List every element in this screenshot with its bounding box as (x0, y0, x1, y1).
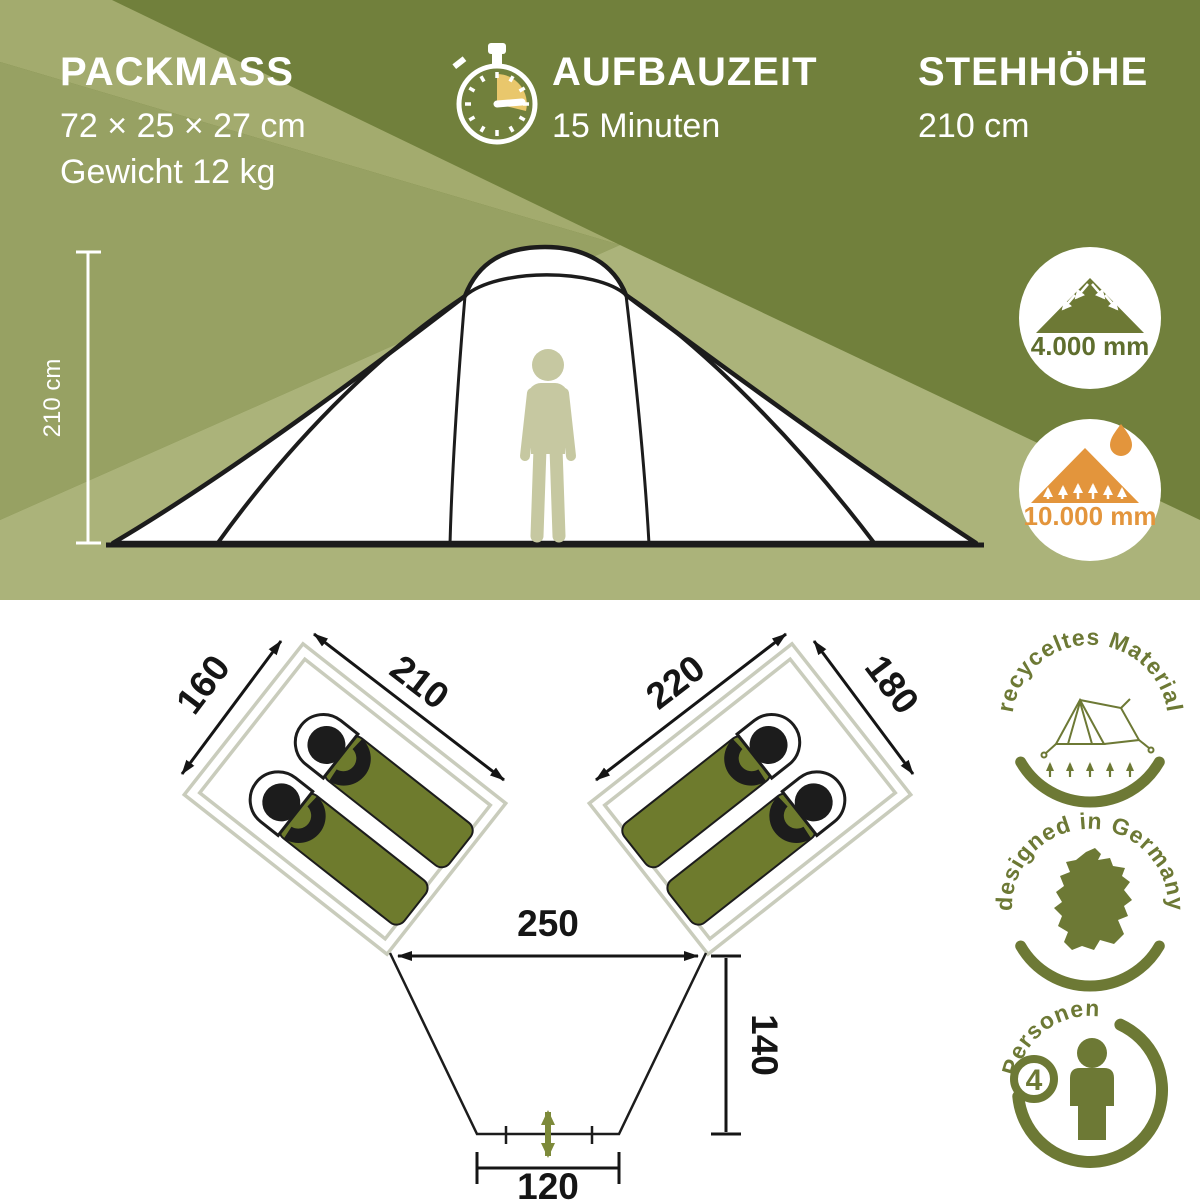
svg-text:recyceltes Material: recyceltes Material (992, 624, 1188, 714)
water-column-floor-label: 10.000 mm (1024, 501, 1157, 531)
dim-entrance-width: 120 (517, 1166, 579, 1200)
stehhoehe-value: 210 cm (918, 109, 1148, 143)
aufbauzeit-title: AUFBAUZEIT (552, 52, 818, 92)
dim-living-width: 250 (517, 903, 579, 944)
packmass-block: PACKMASS 72 × 25 × 27 cm Gewicht 12 kg (60, 52, 306, 189)
right-cabin (589, 644, 910, 954)
recycled-material-seal: recyceltes Material (992, 624, 1188, 802)
height-label: 210 cm (39, 359, 66, 438)
dim-left-side: 160 (168, 647, 238, 721)
germany-map-icon (1054, 848, 1132, 950)
dim-left-front: 210 (383, 647, 457, 717)
floorplan-illustration: 160 210 220 180 250 140 120 recyceltes M… (0, 600, 1200, 1200)
top-section: 210 cm (0, 0, 1200, 600)
tent-line-icon (1042, 699, 1154, 758)
stehhoehe-title: STEHHÖHE (918, 52, 1148, 92)
floorplan-section: 160 210 220 180 250 140 120 recyceltes M… (0, 600, 1200, 1200)
persons-count: 4 (1026, 1064, 1043, 1097)
germany-seal: designed in Germany (991, 808, 1189, 986)
recycled-arrows (1050, 764, 1130, 777)
dim-right-front: 220 (638, 647, 712, 717)
packmass-size: 72 × 25 × 27 cm (60, 109, 306, 143)
aufbauzeit-value: 15 Minuten (552, 109, 818, 143)
stehhoehe-block: STEHHÖHE 210 cm (918, 52, 1148, 143)
left-cabin (184, 644, 505, 954)
dim-living-depth: 140 (744, 1014, 785, 1076)
aufbauzeit-block: AUFBAUZEIT 15 Minuten (552, 52, 818, 143)
packmass-weight: Gewicht 12 kg (60, 155, 306, 189)
dim-right-side: 180 (857, 647, 927, 721)
water-column-floor-badge: 10.000 mm (1019, 419, 1161, 561)
recycled-label: recyceltes Material (992, 624, 1188, 714)
product-infographic: 210 cm (0, 0, 1200, 1200)
water-column-outer-badge: 4.000 mm (1019, 247, 1161, 389)
water-column-outer-label: 4.000 mm (1031, 331, 1150, 361)
persons-seal: Personen 4 (997, 995, 1162, 1162)
packmass-title: PACKMASS (60, 52, 306, 92)
stopwatch-icon (452, 43, 535, 142)
person-silhouette-icon (1070, 1038, 1114, 1140)
